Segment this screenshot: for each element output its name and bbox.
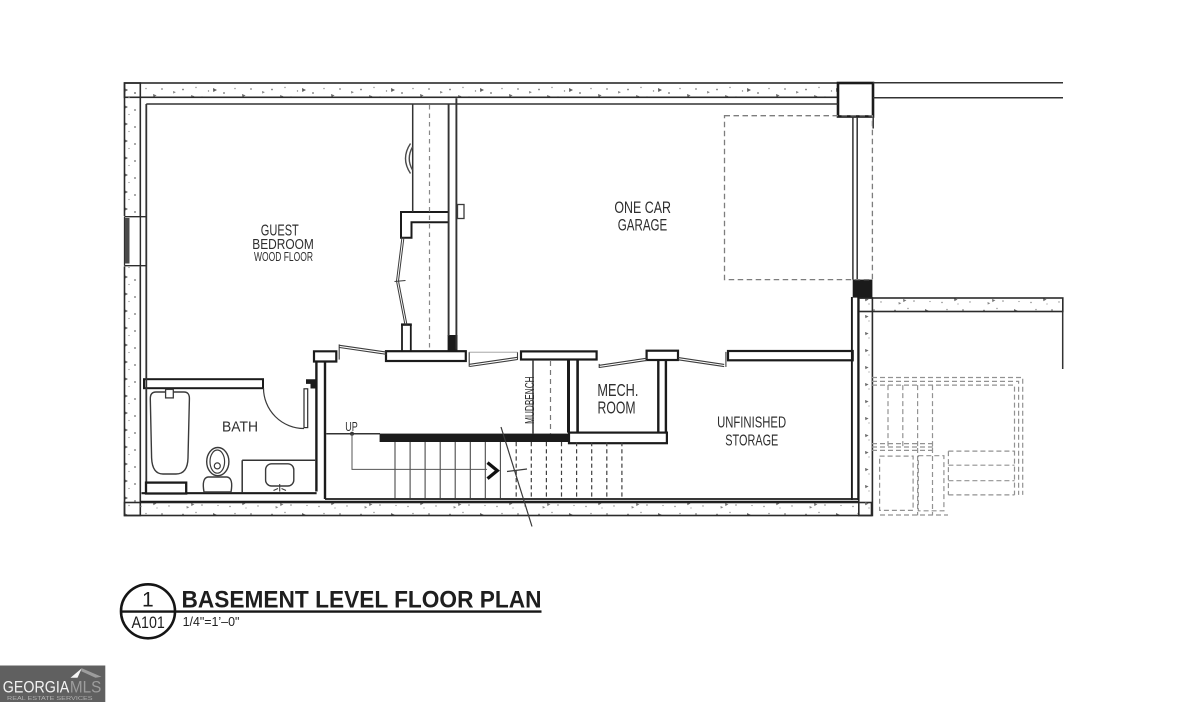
- svg-text:GARAGE: GARAGE: [618, 216, 667, 234]
- svg-text:REAL ESTATE SERVICES: REAL ESTATE SERVICES: [7, 696, 94, 702]
- svg-text:UNFINISHED: UNFINISHED: [717, 414, 786, 431]
- svg-text:BATH: BATH: [222, 418, 258, 435]
- svg-text:UP: UP: [345, 420, 358, 434]
- svg-text:GEORGIA: GEORGIA: [3, 678, 70, 696]
- svg-text:STORAGE: STORAGE: [725, 433, 778, 450]
- svg-text:ROOM: ROOM: [598, 398, 636, 418]
- svg-text:ONE CAR: ONE CAR: [614, 199, 671, 217]
- svg-text:MLS: MLS: [70, 678, 101, 696]
- svg-text:WOOD FLOOR: WOOD FLOOR: [254, 250, 313, 264]
- svg-text:MUDBENCH: MUDBENCH: [523, 376, 537, 424]
- svg-text:BASEMENT LEVEL FLOOR PLAN: BASEMENT LEVEL FLOOR PLAN: [182, 586, 542, 613]
- svg-text:1: 1: [142, 588, 154, 611]
- svg-text:1/4"=1’–0": 1/4"=1’–0": [183, 614, 240, 629]
- svg-text:A101: A101: [132, 613, 165, 632]
